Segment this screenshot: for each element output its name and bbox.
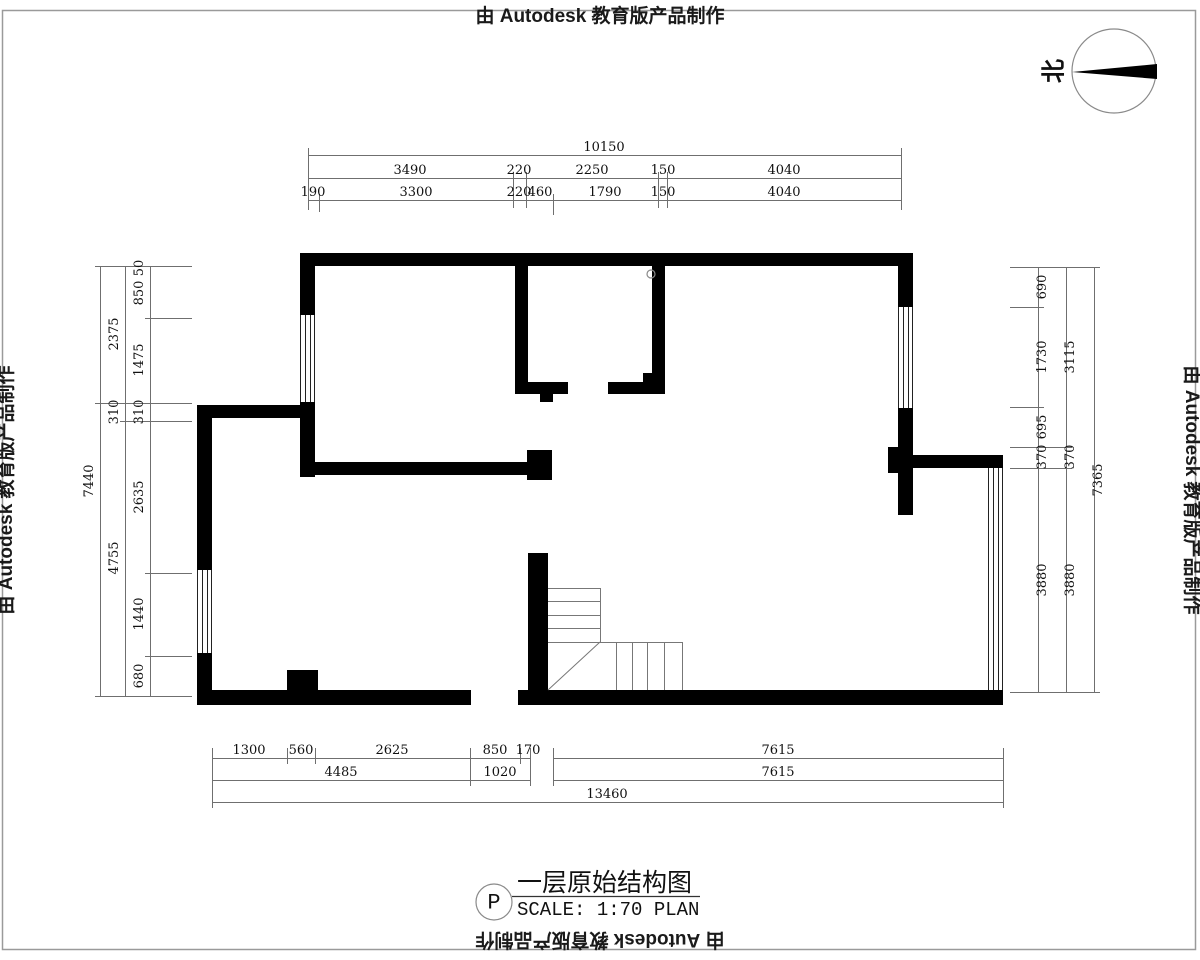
- window-right-outer: [899, 307, 913, 408]
- dim-label: 7365: [1091, 463, 1106, 496]
- stamp-right: 由 Autodesk 教育版产品制作: [1181, 365, 1200, 614]
- dim-label: 7615: [761, 765, 794, 780]
- dim-label: 690: [1035, 275, 1050, 300]
- dim-label: 3300: [399, 185, 432, 200]
- dim-label: 1020: [483, 765, 516, 780]
- window-left-outer: [198, 570, 212, 653]
- wall-smallroom-step: [643, 373, 652, 382]
- wall-stair-side: [528, 553, 548, 693]
- dim-label: 370: [1035, 445, 1050, 470]
- dim-label: 680: [132, 664, 147, 689]
- dim-label: 3115: [1063, 340, 1078, 373]
- wall-left-inner-upper: [300, 253, 315, 315]
- dim-label: 4755: [107, 541, 122, 574]
- wall-smallroom-right: [652, 266, 665, 394]
- dim-bottom-labels: 1300 560 2625 850 170 7615 4485 1020 761…: [232, 743, 794, 802]
- wall-smallroom-notch: [540, 394, 553, 402]
- dim-label: 7615: [761, 743, 794, 758]
- north-label: 北: [1041, 59, 1068, 83]
- dim-top-lines: [308, 148, 902, 215]
- wall-smallroom-stub-left: [528, 382, 568, 394]
- dim-label: 190: [301, 185, 326, 200]
- dim-label: 1475: [132, 343, 147, 376]
- dim-label: 3490: [393, 163, 426, 178]
- wall-top: [300, 253, 913, 266]
- dim-label: 310: [107, 400, 122, 425]
- dim-label: 170: [516, 743, 541, 758]
- wall-bottom-right: [518, 690, 1003, 705]
- dim-label: 3880: [1063, 563, 1078, 596]
- window-left-inner: [301, 315, 315, 402]
- dim-label: 2625: [375, 743, 408, 758]
- stair-break-line: [548, 642, 600, 690]
- dim-label: 2250: [575, 163, 608, 178]
- dim-label: 4485: [324, 765, 357, 780]
- column-pillar: [287, 670, 318, 690]
- drawing-scale: SCALE: 1:70 PLAN: [517, 899, 699, 921]
- dim-label: 850: [132, 281, 147, 306]
- north-arrow-needle: [1072, 64, 1157, 79]
- wall-smallroom-left: [515, 266, 528, 394]
- drawing-title: 一层原始结构图: [517, 869, 692, 897]
- title-block: P 一层原始结构图 SCALE: 1:70 PLAN: [476, 869, 700, 921]
- dim-left-labels: 50 850 1475 310 2635 1440 680 2375 310 4…: [82, 260, 147, 689]
- dim-right-lines: [1010, 267, 1100, 693]
- wall-mid-stub: [527, 450, 552, 480]
- wall-mid-horizontal: [300, 462, 527, 475]
- dim-label: 695: [1035, 415, 1050, 440]
- dim-label: 150: [651, 163, 676, 178]
- wall-bottom-left: [197, 690, 471, 705]
- north-arrow: 北: [1041, 29, 1158, 113]
- dim-label: 3880: [1035, 563, 1050, 596]
- stamp-top: 由 Autodesk 教育版产品制作: [475, 4, 724, 27]
- dim-label: 10150: [583, 140, 624, 155]
- dim-label: 4040: [767, 163, 800, 178]
- cad-sheet: 由 Autodesk 教育版产品制作 由 Autodesk 教育版产品制作 由 …: [0, 0, 1200, 960]
- dim-label: 460: [528, 185, 553, 200]
- dim-label: 560: [289, 743, 314, 758]
- dim-label: 1730: [1035, 340, 1050, 373]
- dim-label: 50: [132, 260, 147, 277]
- wall-smallroom-stub-right: [608, 382, 652, 394]
- stamp-left: 由 Autodesk 教育版产品制作: [0, 365, 17, 614]
- dim-label: 7440: [82, 464, 97, 497]
- dim-label: 370: [1063, 445, 1078, 470]
- dim-label: 1790: [588, 185, 621, 200]
- dim-label: 2635: [132, 480, 147, 513]
- wall-right-bump: [888, 447, 898, 473]
- dim-label: 13460: [586, 787, 627, 802]
- wall-right-outer-top: [898, 266, 913, 307]
- dim-right-labels: 690 1730 695 370 3880 3115 370 3880 7365: [1035, 275, 1106, 597]
- dim-label: 150: [651, 185, 676, 200]
- wall-left-outer-upper: [197, 405, 212, 570]
- dim-label: 2375: [107, 317, 122, 350]
- dim-top-labels: 10150 3490 220 2250 150 4040 190 3300 22…: [301, 140, 801, 200]
- floor-plan-canvas: 由 Autodesk 教育版产品制作 由 Autodesk 教育版产品制作 由 …: [0, 0, 1200, 960]
- window-bay-right: [989, 468, 1003, 690]
- wall-right-outer-mid: [898, 408, 913, 515]
- staircase: [548, 588, 683, 690]
- dim-label: 850: [483, 743, 508, 758]
- wall-lowerleft-top: [197, 405, 300, 418]
- stamp-bottom: 由 Autodesk 教育版产品制作: [475, 929, 724, 952]
- dim-label: 4040: [767, 185, 800, 200]
- dim-label: 1440: [132, 597, 147, 630]
- wall-bay-top: [913, 455, 1003, 468]
- dim-label: 310: [132, 400, 147, 425]
- title-tag: P: [487, 891, 500, 916]
- dim-label: 220: [507, 163, 532, 178]
- dim-label: 1300: [232, 743, 265, 758]
